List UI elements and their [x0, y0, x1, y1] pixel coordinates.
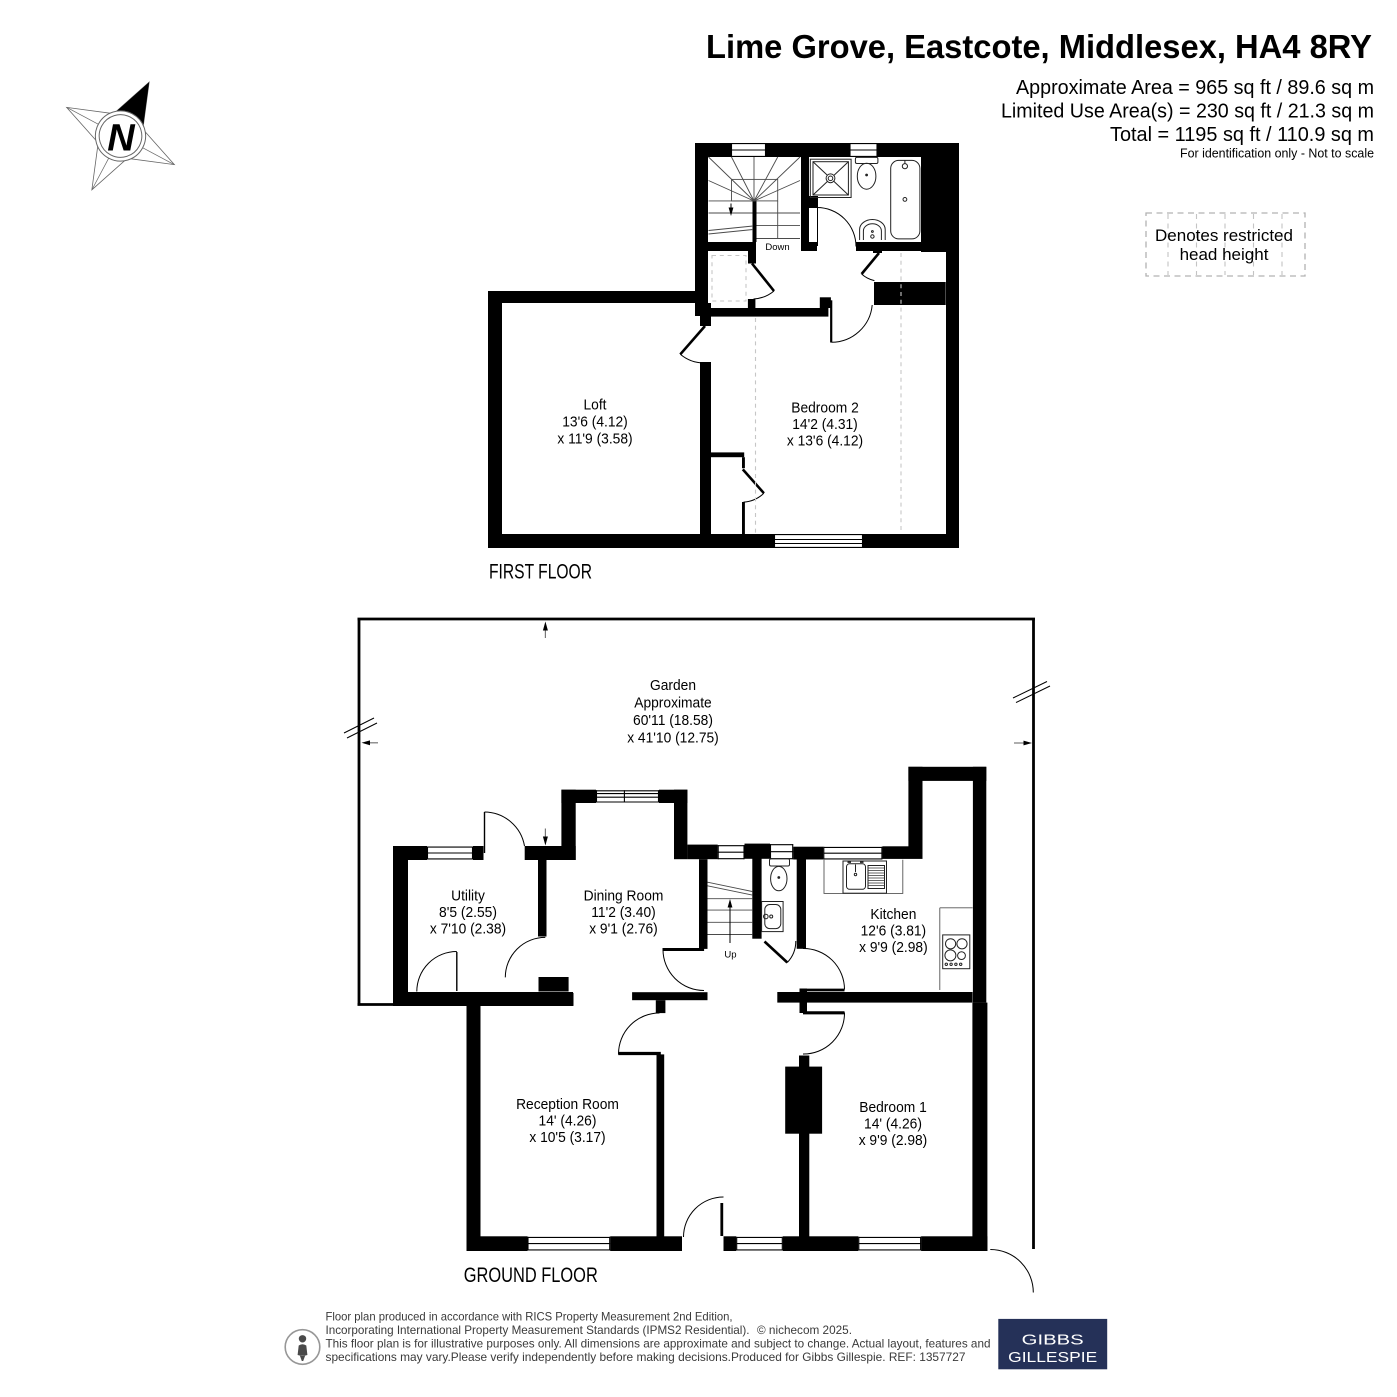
svg-text:Down: Down: [765, 242, 789, 253]
svg-text:11'2 (3.40): 11'2 (3.40): [591, 904, 656, 921]
svg-text:For identification only - Not: For identification only - Not to scale: [1180, 146, 1374, 161]
svg-text:x 9'9 (2.98): x 9'9 (2.98): [859, 1132, 928, 1149]
svg-text:Total = 1195 sq ft / 110.9 sq: Total = 1195 sq ft / 110.9 sq m: [1110, 124, 1374, 146]
svg-text:This floor plan is for illustr: This floor plan is for illustrative purp…: [326, 1337, 991, 1351]
svg-text:Bedroom 1: Bedroom 1: [859, 1099, 927, 1116]
svg-text:Denotes restricted: Denotes restricted: [1155, 226, 1293, 245]
svg-text:head height: head height: [1180, 245, 1269, 264]
svg-text:x 9'9 (2.98): x 9'9 (2.98): [859, 939, 928, 956]
svg-text:Garden: Garden: [650, 677, 696, 694]
svg-text:14'2 (4.31): 14'2 (4.31): [792, 416, 858, 433]
svg-text:60'11 (18.58): 60'11 (18.58): [633, 712, 713, 729]
svg-text:Utility: Utility: [451, 888, 485, 905]
svg-text:13'6 (4.12): 13'6 (4.12): [562, 414, 628, 431]
svg-text:14' (4.26): 14' (4.26): [864, 1116, 922, 1133]
svg-text:x 41'10 (12.75): x 41'10 (12.75): [627, 730, 719, 747]
svg-text:GROUND FLOOR: GROUND FLOOR: [464, 1264, 598, 1287]
svg-text:Kitchen: Kitchen: [870, 906, 916, 923]
svg-text:Up: Up: [724, 950, 736, 961]
svg-text:Incorporating International Pr: Incorporating International Property Mea…: [326, 1323, 750, 1337]
svg-text:Limited Use Area(s) = 230 sq f: Limited Use Area(s) = 230 sq ft / 21.3 s…: [1001, 101, 1374, 123]
svg-text:Approximate: Approximate: [634, 695, 712, 712]
svg-text:x 9'1 (2.76): x 9'1 (2.76): [589, 921, 658, 938]
svg-text:x 11'9 (3.58): x 11'9 (3.58): [557, 431, 632, 448]
svg-text:Lime Grove, Eastcote, Middlese: Lime Grove, Eastcote, Middlesex, HA4 8RY: [706, 28, 1372, 65]
svg-text:x 10'5 (3.17): x 10'5 (3.17): [529, 1129, 605, 1146]
svg-text:x 7'10 (2.38): x 7'10 (2.38): [430, 921, 506, 938]
svg-text:Floor plan produced in accorda: Floor plan produced in accordance with R…: [326, 1310, 733, 1324]
svg-text:GIBBS: GIBBS: [1022, 1332, 1084, 1349]
svg-text:FIRST FLOOR: FIRST FLOOR: [489, 561, 592, 584]
svg-text:N: N: [107, 118, 136, 160]
svg-text:Bedroom 2: Bedroom 2: [791, 400, 859, 417]
svg-text:14' (4.26): 14' (4.26): [539, 1113, 597, 1130]
svg-text:GILLESPIE: GILLESPIE: [1008, 1349, 1097, 1366]
svg-text:Dining Room: Dining Room: [584, 888, 664, 905]
svg-text:© nichecom 2025.: © nichecom 2025.: [757, 1323, 852, 1337]
svg-text:specifications may vary.Please: specifications may vary.Please verify in…: [326, 1350, 966, 1364]
svg-text:Approximate Area = 965 sq ft /: Approximate Area = 965 sq ft / 89.6 sq m: [1016, 77, 1374, 99]
svg-text:x 13'6 (4.12): x 13'6 (4.12): [787, 433, 863, 450]
svg-text:Loft: Loft: [584, 397, 608, 414]
svg-text:12'6 (3.81): 12'6 (3.81): [861, 923, 927, 940]
svg-text:Reception Room: Reception Room: [516, 1096, 619, 1113]
svg-text:8'5 (2.55): 8'5 (2.55): [439, 904, 497, 921]
